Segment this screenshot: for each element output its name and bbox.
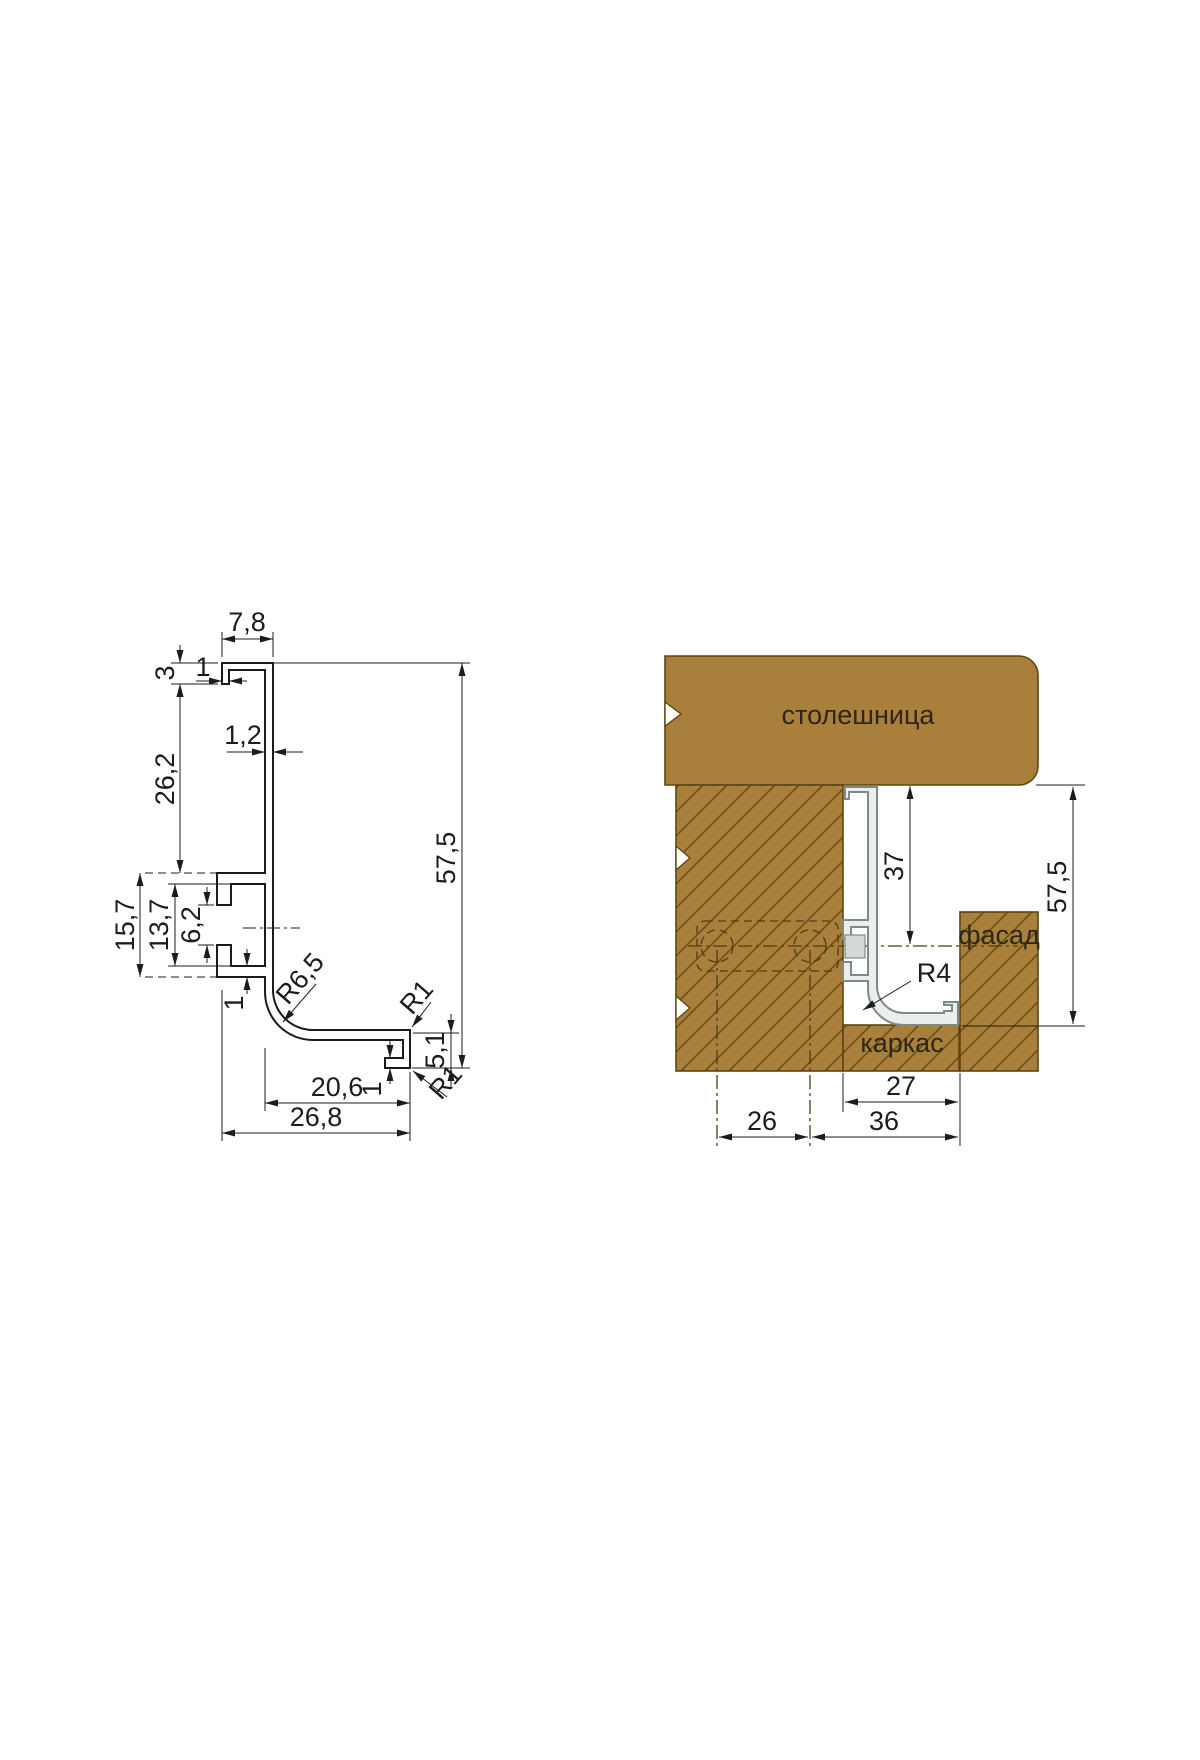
dim-label: 3 bbox=[150, 665, 180, 680]
dim-label: R4 bbox=[917, 958, 952, 988]
dim-upper-height: 26,2 bbox=[150, 684, 180, 873]
dim-label: 1,2 bbox=[224, 720, 262, 750]
dim-label: 20,6 bbox=[311, 1072, 364, 1102]
dim-label: 27 bbox=[886, 1071, 916, 1101]
dim-web-thickness: 1,2 bbox=[224, 720, 303, 752]
dim-screw-spacing: 26 bbox=[719, 1106, 808, 1137]
technical-drawing-page: 7,8 3 1 1,2 26,2 15, bbox=[0, 0, 1200, 1760]
dim-label: R1 bbox=[394, 974, 439, 1020]
countertop-label: столешница bbox=[782, 700, 936, 730]
dim-label: 6,2 bbox=[176, 906, 206, 944]
dim-overall-height: 57,5 bbox=[273, 663, 470, 1068]
dim-carcass-depth: 27 bbox=[843, 1071, 960, 1146]
dim-profile-drop: 37 bbox=[879, 786, 910, 944]
dim-clip-opening: 6,2 bbox=[176, 887, 214, 963]
profile-cross-section-drawing: 7,8 3 1 1,2 26,2 15, bbox=[110, 607, 470, 1141]
dim-label: 36 bbox=[869, 1106, 899, 1136]
dim-label: R6,5 bbox=[270, 947, 330, 1010]
dim-label: 7,8 bbox=[228, 607, 266, 637]
fastener-clip-block bbox=[845, 935, 865, 958]
profile-section bbox=[843, 787, 958, 1025]
installation-diagram: столешница каркас фасад 37 bbox=[665, 656, 1085, 1147]
dim-label: 26 bbox=[747, 1106, 777, 1136]
dim-label: 26,2 bbox=[150, 753, 180, 806]
dim-label: 15,7 bbox=[110, 899, 140, 952]
dim-overall-width: 26,8 bbox=[222, 990, 410, 1141]
carcass-side-panel bbox=[676, 785, 843, 1071]
dim-clip-outer-height: 15,7 bbox=[110, 873, 140, 977]
dim-label: 1 bbox=[195, 652, 210, 682]
carcass-label: каркас bbox=[860, 1028, 943, 1058]
dim-label: 57,5 bbox=[1042, 861, 1072, 914]
dim-top-width: 7,8 bbox=[222, 607, 273, 657]
technical-drawing-canvas: 7,8 3 1 1,2 26,2 15, bbox=[0, 0, 1200, 1760]
dim-label: 13,7 bbox=[144, 899, 174, 952]
dim-label: 57,5 bbox=[431, 832, 461, 885]
dim-facade-offset: 36 bbox=[812, 1106, 958, 1137]
dim-label: 37 bbox=[879, 851, 909, 881]
dim-label: 1 bbox=[219, 995, 249, 1010]
dim-label: 26,8 bbox=[290, 1102, 343, 1132]
dim-leg-corner-radius: R1 bbox=[394, 974, 439, 1027]
